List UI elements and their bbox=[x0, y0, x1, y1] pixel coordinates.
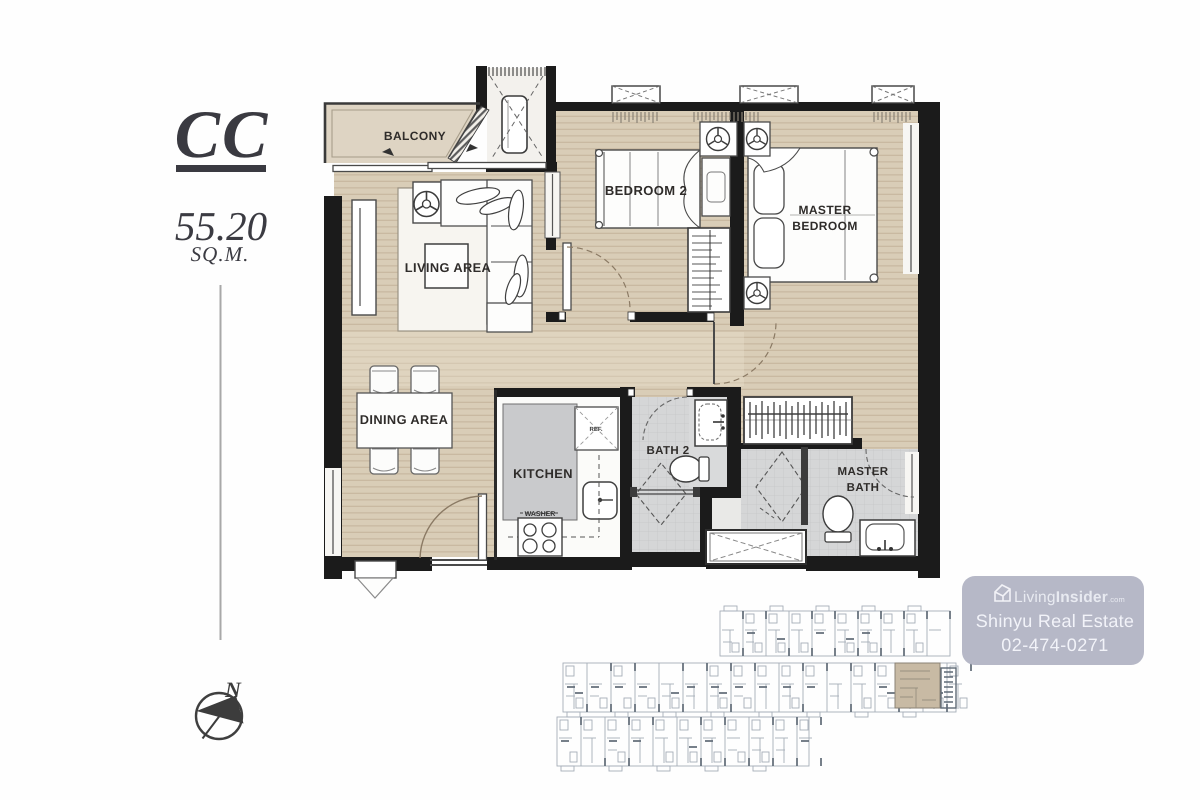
svg-text:LIVING AREA: LIVING AREA bbox=[405, 260, 491, 275]
svg-text:BEDROOM: BEDROOM bbox=[792, 219, 857, 233]
svg-text:KITCHEN: KITCHEN bbox=[513, 466, 573, 481]
svg-text:BATH: BATH bbox=[847, 482, 880, 494]
svg-text:Shinyu Real Estate: Shinyu Real Estate bbox=[976, 611, 1135, 631]
svg-text:02-474-0271: 02-474-0271 bbox=[1001, 635, 1109, 655]
svg-text:MASTER: MASTER bbox=[838, 466, 889, 478]
svg-text:REF.: REF. bbox=[589, 426, 602, 433]
svg-text:BALCONY: BALCONY bbox=[384, 129, 446, 143]
svg-text:MASTER: MASTER bbox=[798, 203, 851, 217]
svg-text:CC: CC bbox=[175, 96, 270, 172]
svg-text:BEDROOM 2: BEDROOM 2 bbox=[605, 183, 687, 198]
svg-text:BATH 2: BATH 2 bbox=[646, 445, 689, 457]
svg-text:WASHER: WASHER bbox=[525, 511, 556, 518]
svg-text:DINING AREA: DINING AREA bbox=[360, 412, 449, 427]
svg-text:SQ.M.: SQ.M. bbox=[191, 242, 250, 266]
